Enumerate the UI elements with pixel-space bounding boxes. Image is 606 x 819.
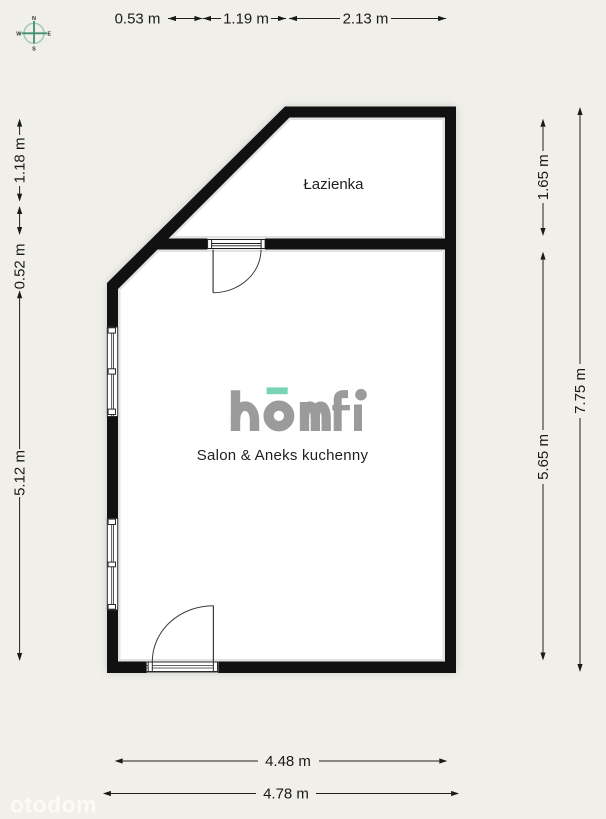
svg-text:Salon & Aneks kuchenny: Salon & Aneks kuchenny — [197, 447, 369, 464]
svg-text:5.12 m: 5.12 m — [12, 450, 29, 496]
svg-text:2.13 m: 2.13 m — [343, 11, 389, 28]
svg-text:otodom: otodom — [10, 792, 97, 818]
svg-text:W: W — [16, 31, 22, 37]
svg-text:0.52 m: 0.52 m — [12, 244, 29, 290]
svg-text:4.48 m: 4.48 m — [265, 753, 311, 770]
svg-text:1.65 m: 1.65 m — [535, 154, 552, 200]
svg-text:0.53 m: 0.53 m — [115, 11, 161, 28]
svg-text:4.78 m: 4.78 m — [263, 786, 309, 803]
svg-text:1.19 m: 1.19 m — [223, 11, 269, 28]
svg-text:5.65 m: 5.65 m — [535, 434, 552, 480]
svg-text:E: E — [47, 31, 51, 37]
svg-text:S: S — [32, 47, 36, 53]
svg-text:7.75 m: 7.75 m — [572, 368, 589, 414]
svg-text:1.18 m: 1.18 m — [12, 138, 29, 184]
svg-text:Łazienka: Łazienka — [303, 176, 364, 193]
svg-text:N: N — [32, 16, 36, 22]
